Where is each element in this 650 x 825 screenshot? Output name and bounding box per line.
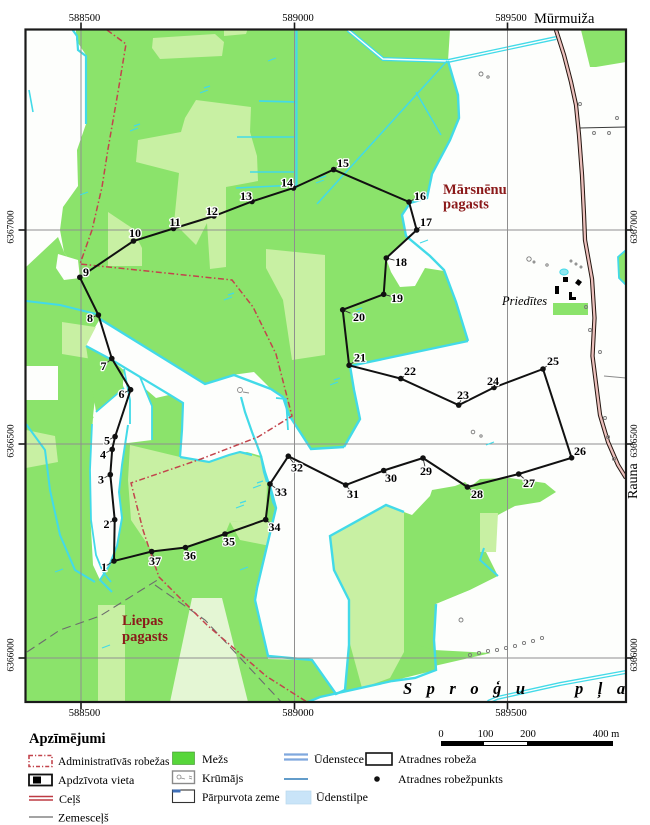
svg-text:6366500: 6366500 xyxy=(630,424,640,458)
svg-text:pagasts: pagasts xyxy=(443,197,489,213)
svg-text:5: 5 xyxy=(104,434,110,448)
svg-text:6366000: 6366000 xyxy=(630,638,640,672)
svg-text:25: 25 xyxy=(547,354,559,368)
svg-text:588500: 588500 xyxy=(69,708,101,719)
svg-text:31: 31 xyxy=(347,487,359,501)
svg-text:23: 23 xyxy=(457,388,469,402)
svg-text:19: 19 xyxy=(391,291,403,305)
svg-text:1: 1 xyxy=(101,560,107,574)
svg-text:Sproģu: Sproģu xyxy=(403,679,540,698)
svg-text:16: 16 xyxy=(414,189,426,203)
svg-text:589000: 589000 xyxy=(282,708,314,719)
svg-text:18: 18 xyxy=(395,255,407,269)
svg-text:35: 35 xyxy=(223,535,235,549)
svg-text:pļa: pļa xyxy=(573,679,640,699)
svg-text:Krūmājs: Krūmājs xyxy=(202,771,244,785)
svg-text:22: 22 xyxy=(404,364,416,378)
svg-text:Ūdenstece: Ūdenstece xyxy=(314,752,364,766)
svg-text:Zemesceļš: Zemesceļš xyxy=(58,811,109,825)
svg-text:30: 30 xyxy=(385,471,397,485)
svg-text:32: 32 xyxy=(291,461,303,475)
svg-text:29: 29 xyxy=(420,464,432,478)
svg-text:34: 34 xyxy=(269,520,281,534)
svg-text:3: 3 xyxy=(98,473,104,487)
svg-text:11: 11 xyxy=(169,215,180,229)
svg-text:Liepas: Liepas xyxy=(122,613,163,629)
svg-text:Atradnes robeža: Atradnes robeža xyxy=(398,752,477,766)
svg-text:Atradnes robežpunkts: Atradnes robežpunkts xyxy=(398,772,503,786)
svg-text:27: 27 xyxy=(523,476,535,490)
svg-text:589000: 589000 xyxy=(282,13,314,24)
svg-text:28: 28 xyxy=(471,487,483,501)
svg-text:6: 6 xyxy=(119,387,125,401)
svg-text:20: 20 xyxy=(353,310,365,324)
svg-text:13: 13 xyxy=(240,189,252,203)
svg-text:589500: 589500 xyxy=(495,708,527,719)
svg-text:26: 26 xyxy=(574,444,586,458)
svg-text:Ūdenstilpe: Ūdenstilpe xyxy=(316,790,368,804)
svg-text:6366500: 6366500 xyxy=(7,424,17,458)
svg-text:588500: 588500 xyxy=(69,13,101,24)
svg-text:Apzīmējumi: Apzīmējumi xyxy=(29,731,106,747)
svg-text:Mūrmuiža: Mūrmuiža xyxy=(534,11,595,27)
svg-text:8: 8 xyxy=(87,311,93,325)
svg-text:Mežs: Mežs xyxy=(202,752,228,766)
svg-text:33: 33 xyxy=(275,485,287,499)
svg-text:9: 9 xyxy=(83,265,89,279)
svg-text:Rauna: Rauna xyxy=(626,462,641,499)
svg-text:17: 17 xyxy=(420,215,432,229)
svg-text:Pārpurvota zeme: Pārpurvota zeme xyxy=(202,792,280,804)
svg-text:Apdzīvota vieta: Apdzīvota vieta xyxy=(58,773,135,787)
svg-text:24: 24 xyxy=(487,374,499,388)
svg-text:7: 7 xyxy=(101,359,107,373)
svg-text:2: 2 xyxy=(104,517,110,531)
svg-text:Priedītes: Priedītes xyxy=(501,294,547,308)
svg-text:12: 12 xyxy=(206,204,218,218)
svg-text:36: 36 xyxy=(184,549,196,563)
svg-text:6367000: 6367000 xyxy=(630,210,640,244)
svg-text:200: 200 xyxy=(520,729,536,740)
svg-text:4: 4 xyxy=(100,448,106,462)
svg-text:Administratīvās robežas: Administratīvās robežas xyxy=(58,756,170,768)
svg-text:14: 14 xyxy=(281,176,293,190)
svg-text:Ceļš: Ceļš xyxy=(59,792,81,806)
svg-text:21: 21 xyxy=(354,351,366,365)
svg-text:6366000: 6366000 xyxy=(7,638,17,672)
svg-text:pagasts: pagasts xyxy=(122,629,168,645)
svg-text:0: 0 xyxy=(438,729,443,740)
svg-text:15: 15 xyxy=(337,156,349,170)
svg-text:400 m: 400 m xyxy=(593,729,620,740)
svg-text:100: 100 xyxy=(478,729,494,740)
svg-text:589500: 589500 xyxy=(495,13,527,24)
svg-text:6367000: 6367000 xyxy=(7,210,17,244)
svg-text:37: 37 xyxy=(149,554,161,568)
svg-text:10: 10 xyxy=(129,226,141,240)
